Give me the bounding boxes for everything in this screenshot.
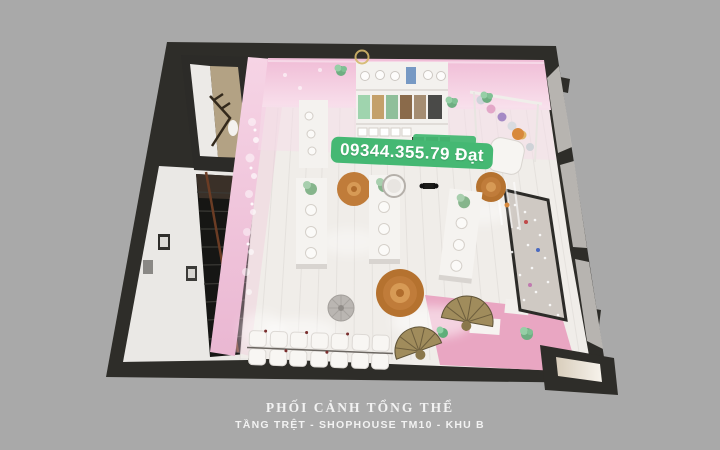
side-counter xyxy=(299,100,328,168)
black-equipment xyxy=(420,183,439,189)
toilet xyxy=(228,120,238,136)
entrance-vestibule xyxy=(540,345,618,395)
rattan-mat xyxy=(376,269,424,317)
caption-subtitle: TẦNG TRỆT - SHOPHOUSE TM10 - KHU B xyxy=(0,418,720,433)
display-shelf xyxy=(356,51,451,149)
render-canvas: 09344.355.79 Đạt PHỐI CẢNH TỔNG THỂ TẦNG… xyxy=(0,0,720,450)
rattan-mat xyxy=(337,172,371,206)
knit-pouf xyxy=(328,295,354,321)
caption: PHỐI CẢNH TỔNG THỂ TẦNG TRỆT - SHOPHOUSE… xyxy=(0,400,720,433)
manicure-table xyxy=(296,178,327,269)
caption-title: PHỐI CẢNH TỔNG THỂ xyxy=(0,400,720,415)
orange-display-item xyxy=(512,128,524,140)
round-side-table xyxy=(383,175,405,197)
floorplan-3d-render xyxy=(0,0,720,450)
